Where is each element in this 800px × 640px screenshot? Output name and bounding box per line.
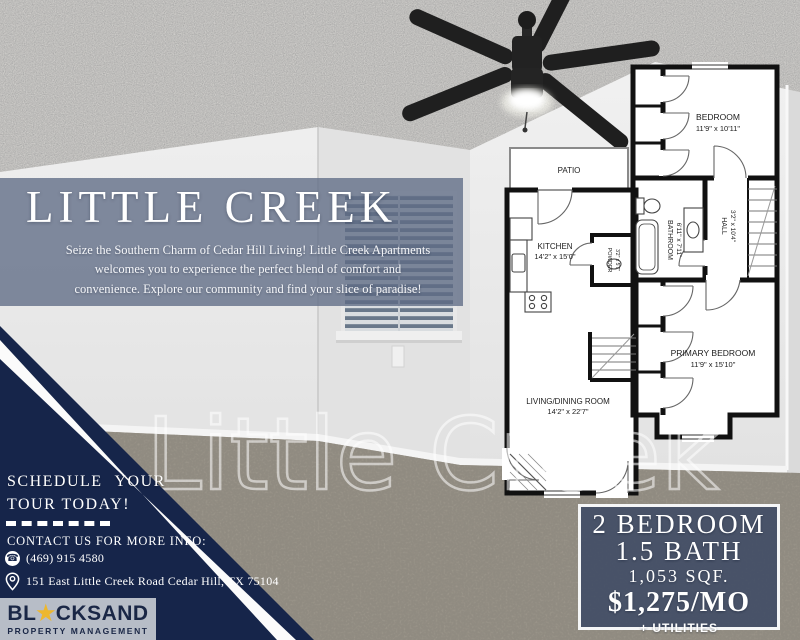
dashed-divider [6,521,110,526]
contact-heading: CONTACT US FOR MORE INFO: [7,534,206,549]
bedroom-count: 2 BEDROOM [581,511,777,538]
address-row: 151 East Little Creek Road Cedar Hill, T… [5,572,279,591]
star-icon: ★ [36,602,55,625]
square-footage: 1,053 SQF. [581,565,777,588]
logo-name: BL★CKSAND [7,603,148,624]
utilities-note: + UTILITIES [581,621,777,635]
logo-prefix: BL [7,602,36,625]
pricing-panel: 2 BEDROOM 1.5 BATH 1,053 SQF. $1,275/MO … [578,504,780,630]
company-logo: BL★CKSAND PROPERTY MANAGEMENT [0,598,156,640]
monthly-rent: $1,275/MO [581,588,777,619]
address: 151 East Little Creek Road Cedar Hill, T… [26,574,279,589]
logo-suffix: CKSAND [56,602,149,625]
bathroom-count: 1.5 BATH [581,538,777,565]
location-pin-icon [5,572,20,591]
phone-number: (469) 915 4580 [26,551,104,566]
phone-row: ☎ (469) 915 4580 [5,551,104,566]
cta-line2: TOUR TODAY! [7,496,130,514]
logo-tagline: PROPERTY MANAGEMENT [7,626,148,636]
flyer: LITTLE CREEK Seize the Southern Charm of… [0,0,800,640]
cta-line1: SCHEDULE YOUR [7,473,166,491]
phone-icon: ☎ [5,551,20,566]
